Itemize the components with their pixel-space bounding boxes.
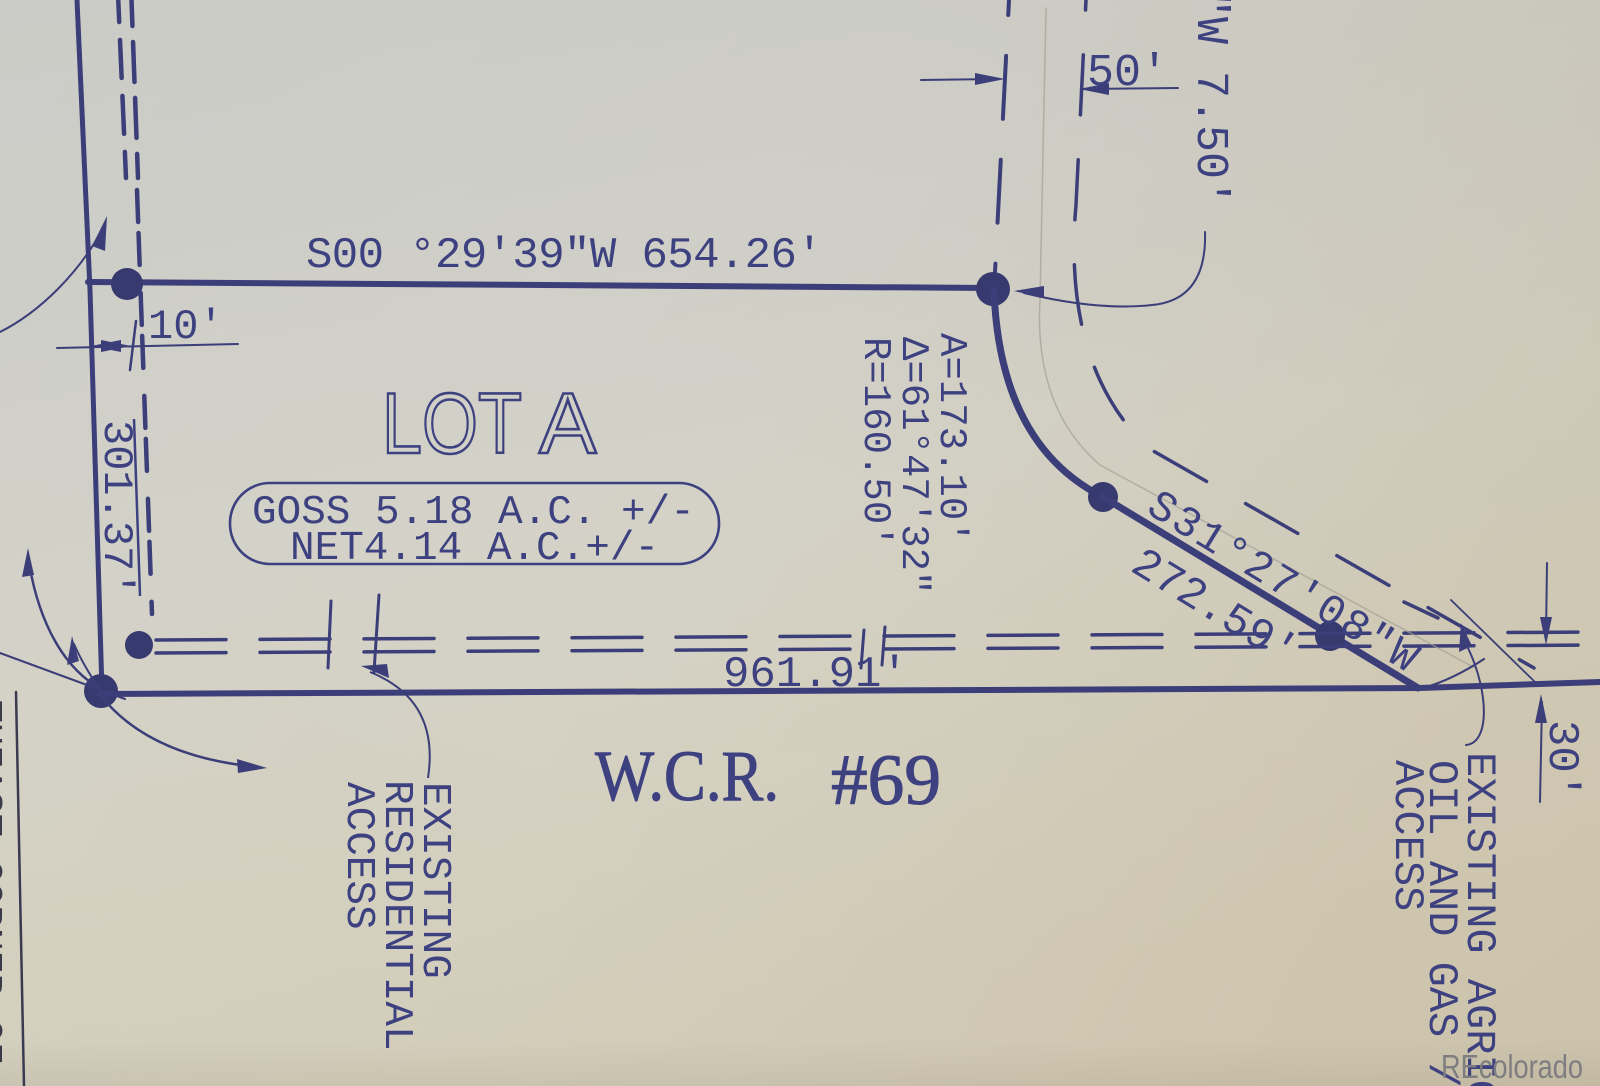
svg-text:ACCESS: ACCESS [335,782,381,930]
svg-text:#69: #69 [831,740,941,820]
svg-text:10': 10' [148,303,224,351]
svg-text:S00 °29'39"W 654.26': S00 °29'39"W 654.26' [306,231,822,281]
svg-text:THEAST CORNER OF: THEAST CORNER OF [0,700,8,1065]
svg-text:961.91': 961.91' [723,650,908,700]
svg-text:W.C.R.: W.C.R. [595,736,779,816]
svg-text:301.37': 301.37' [92,420,140,596]
svg-text:ACCESS: ACCESS [1383,760,1431,911]
svg-text:R=160.50': R=160.50' [853,337,897,548]
svg-text:LOT: LOT [382,376,522,472]
svg-text:A: A [539,376,597,472]
svg-text:"W 7.50': "W 7.50' [1184,0,1235,206]
svg-text:NET4.14 A.C.+/-: NET4.14 A.C.+/- [290,526,659,572]
svg-text:REcolorado: REcolorado [1441,1048,1583,1085]
svg-text:50': 50' [1087,48,1168,99]
svg-text:30': 30' [1536,720,1586,799]
